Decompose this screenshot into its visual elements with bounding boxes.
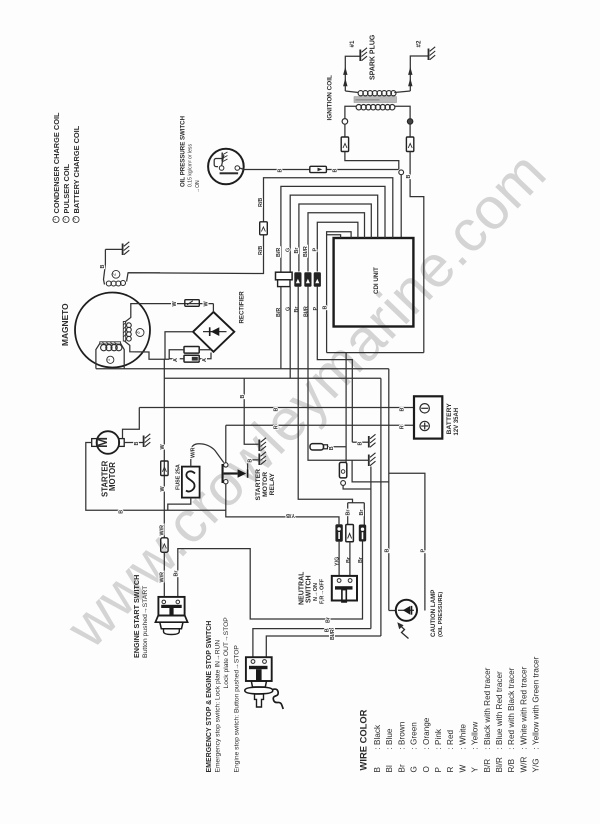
svg-text:: White: : White	[458, 724, 467, 750]
svg-text:: Pink: : Pink	[434, 728, 443, 749]
svg-text:F,R→OFF: F,R→OFF	[320, 578, 326, 604]
svg-text:CAUTION LAMP: CAUTION LAMP	[430, 590, 437, 637]
svg-text:R/B: R/B	[258, 246, 264, 255]
svg-text:W: W	[204, 301, 210, 307]
svg-text:: Blue: : Blue	[385, 728, 394, 749]
svg-text:: Brown: : Brown	[397, 721, 406, 749]
svg-text:N→ON: N→ON	[313, 583, 319, 601]
svg-text:R: R	[446, 767, 455, 773]
svg-text:Button pushed→START: Button pushed→START	[142, 586, 149, 658]
svg-text:1: 1	[52, 218, 57, 221]
svg-text:P: P	[421, 549, 427, 553]
svg-text:B: B	[333, 169, 339, 173]
svg-text:BATTERY: BATTERY	[446, 403, 453, 435]
svg-text:B: B	[100, 265, 106, 269]
svg-text:STARTER: STARTER	[255, 469, 262, 501]
svg-text:EMERGENCY STOP & ENGINE STOP S: EMERGENCY STOP & ENGINE STOP SWITCH	[206, 621, 213, 773]
svg-text:1: 1	[106, 358, 111, 361]
svg-text:A: A	[173, 358, 179, 362]
svg-text:CONDENSER CHARGE COIL: CONDENSER CHARGE COIL	[52, 112, 61, 213]
svg-text:2: 2	[112, 273, 118, 276]
svg-text:WIRE COLOR: WIRE COLOR	[358, 709, 369, 770]
svg-text:→ON: →ON	[195, 180, 201, 193]
svg-text:3: 3	[72, 218, 77, 221]
svg-text:BATTERY CHARGE COIL: BATTERY CHARGE COIL	[72, 125, 81, 213]
svg-text:FUSE 25A: FUSE 25A	[175, 464, 181, 490]
svg-text:Emergency stop switch: Lock pl: Emergency stop switch: Lock plate IN→RUN	[215, 640, 222, 773]
svg-text:: Black with Red tracer: : Black with Red tracer	[483, 667, 492, 749]
svg-text:: Yellow with Green tracer: : Yellow with Green tracer	[532, 656, 541, 749]
svg-text:: Green: : Green	[410, 722, 419, 750]
svg-text:Br: Br	[326, 616, 332, 623]
svg-text:: Red: : Red	[446, 729, 455, 749]
svg-text:B: B	[373, 767, 382, 773]
svg-text:Br: Br	[359, 509, 365, 516]
svg-text:W: W	[458, 765, 467, 773]
svg-text:Br: Br	[346, 556, 352, 563]
svg-text:Br: Br	[397, 764, 406, 772]
svg-text:OIL PRESSURE SWITCH: OIL PRESSURE SWITCH	[180, 116, 187, 187]
svg-text:SWITCH: SWITCH	[306, 575, 313, 603]
svg-text:: White with Red tracer: : White with Red tracer	[519, 666, 528, 749]
svg-text:Br: Br	[294, 306, 300, 313]
svg-text:B: B	[274, 408, 280, 412]
svg-text:: Orange: : Orange	[422, 717, 431, 749]
svg-text:ENGINE START SWITCH: ENGINE START SWITCH	[132, 575, 141, 658]
svg-text:(OIL PRESSURE): (OIL PRESSURE)	[438, 592, 444, 637]
svg-text:B: B	[329, 446, 335, 450]
svg-text:Bl/R: Bl/R	[330, 629, 336, 640]
svg-text:MOTOR: MOTOR	[262, 472, 269, 497]
svg-text:Br: Br	[346, 509, 352, 516]
svg-text:IGNITION COIL: IGNITION COIL	[327, 75, 334, 121]
svg-text:P: P	[312, 248, 318, 252]
svg-text:B: B	[406, 175, 412, 179]
svg-text:#2: #2	[416, 40, 423, 47]
svg-text:Y/B: Y/B	[286, 512, 295, 518]
svg-text:B: B	[358, 442, 364, 446]
svg-text:B: B	[240, 395, 246, 399]
svg-text:MOTOR: MOTOR	[108, 462, 117, 491]
svg-text:B: B	[278, 169, 284, 173]
svg-text:B: B	[384, 549, 390, 553]
svg-text:W/R: W/R	[519, 756, 528, 772]
svg-text:B: B	[118, 510, 124, 514]
svg-text:#1: #1	[349, 40, 356, 47]
svg-text:PULSER COIL: PULSER COIL	[62, 163, 71, 213]
svg-text:B/R: B/R	[483, 759, 492, 773]
svg-text:W: W	[160, 486, 166, 492]
svg-text:A: A	[202, 358, 208, 362]
svg-text:RELAY: RELAY	[269, 473, 276, 496]
svg-text:2: 2	[62, 218, 67, 221]
svg-text:Engine stop switch: Button pus: Engine stop switch: Button pushed→STOP	[234, 645, 241, 773]
svg-text:Bl/R: Bl/R	[303, 246, 309, 257]
svg-text:3: 3	[136, 331, 142, 334]
svg-text:P: P	[434, 767, 443, 773]
svg-text:RECTIFIER: RECTIFIER	[239, 291, 246, 324]
svg-text:W: W	[172, 301, 178, 307]
svg-text:Br: Br	[294, 247, 300, 254]
svg-text:Bl/R: Bl/R	[495, 757, 504, 773]
svg-text:SPARK PLUG: SPARK PLUG	[370, 34, 377, 80]
svg-text:MAGNETO: MAGNETO	[60, 303, 70, 346]
svg-text:NEUTRAL: NEUTRAL	[299, 571, 306, 605]
svg-text:12V 35AH: 12V 35AH	[454, 408, 460, 436]
svg-text:R: R	[400, 425, 406, 429]
svg-text:: Blue with Red tracer: : Blue with Red tracer	[495, 671, 504, 750]
svg-text:W/R: W/R	[190, 447, 196, 458]
svg-text:R/B: R/B	[258, 198, 264, 207]
svg-text:P: P	[313, 307, 319, 311]
svg-text:Y: Y	[471, 767, 480, 773]
svg-text:Y/G: Y/G	[532, 758, 541, 772]
svg-text:: Red with Black tracer: : Red with Black tracer	[507, 667, 516, 749]
svg-text:R: R	[274, 425, 280, 429]
svg-text:Bl: Bl	[385, 765, 394, 772]
svg-text:W/R: W/R	[160, 525, 166, 536]
svg-text:: Black: : Black	[373, 724, 382, 749]
svg-text:Br: Br	[173, 570, 179, 577]
svg-text:B: B	[322, 306, 328, 310]
svg-text:G: G	[410, 766, 419, 772]
svg-text:0.15 kg/cm² or less: 0.15 kg/cm² or less	[188, 144, 194, 187]
svg-text:G: G	[285, 248, 291, 252]
svg-text:B/R: B/R	[276, 248, 282, 257]
svg-text:B: B	[247, 459, 253, 463]
svg-text:: Yellow: : Yellow	[471, 722, 480, 750]
svg-text:Lock plate OUT→STOP: Lock plate OUT→STOP	[223, 617, 230, 689]
svg-text:CDI UNIT: CDI UNIT	[373, 267, 380, 294]
svg-text:O: O	[422, 766, 431, 772]
svg-text:B: B	[134, 442, 140, 446]
svg-text:W/R: W/R	[160, 572, 166, 583]
svg-text:B: B	[400, 408, 406, 412]
svg-text:R/B: R/B	[507, 758, 516, 772]
svg-text:W: W	[160, 444, 166, 450]
